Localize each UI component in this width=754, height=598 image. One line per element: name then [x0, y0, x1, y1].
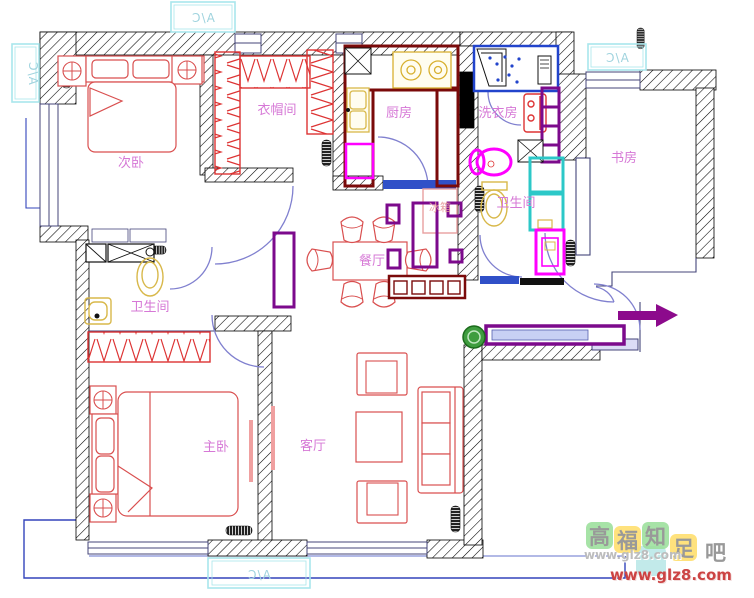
- ac-unit-top-right: A/C: [588, 44, 646, 70]
- bathroom-left-fixtures: [85, 233, 294, 324]
- bathroom-door-sill: [480, 276, 519, 284]
- coffee-table: [356, 412, 402, 462]
- ac-unit-left: A/C: [12, 44, 40, 102]
- entry-area: [463, 304, 678, 348]
- label-bathroom-left: 卫生间: [130, 300, 169, 315]
- shower-cabin: [530, 158, 563, 230]
- watermark-url-large: www.glz8.com: [610, 566, 732, 584]
- entrance-direction-arrow: [618, 304, 678, 327]
- washing-machine-magenta: [536, 230, 564, 274]
- stove: [393, 52, 451, 88]
- kitchen-appliance-magenta: [346, 144, 373, 178]
- ac-unit-bottom: A/C: [208, 558, 310, 588]
- label-master-bedroom: 主卧: [203, 440, 229, 455]
- floor-plan-page: 次卧 衣帽间 厨房 洗衣房 书房 卫生间 餐厅 卫生间 主卧 客厅 冰箱 A/C…: [0, 0, 754, 598]
- watermark: 高 福 知 足 吧 www.glz8.com www.glz8.com: [584, 516, 752, 596]
- label-bathroom-right: 卫生间: [496, 196, 535, 211]
- label-kitchen: 厨房: [386, 105, 412, 121]
- label-laundry-room: 洗衣房: [478, 105, 517, 121]
- label-fridge: 冰箱: [429, 200, 451, 214]
- ac-label-top-right: A/C: [605, 51, 629, 65]
- master-bed: [90, 386, 275, 522]
- entry-green-marker: [463, 326, 485, 348]
- ac-unit-top-left: A/C: [171, 2, 235, 32]
- sideboard-maroon: [389, 276, 465, 298]
- laundry-fixtures: [474, 46, 559, 162]
- bathroom-right-fixtures: [470, 149, 564, 274]
- label-dining-room: 餐厅: [359, 253, 385, 269]
- watermark-tile: 吧: [702, 538, 729, 565]
- kitchen-sink: [346, 88, 369, 132]
- ac-label-bottom: A/C: [247, 568, 271, 582]
- watermark-url-small: www.glz8.com: [584, 548, 682, 562]
- label-study: 书房: [611, 150, 637, 166]
- master-wardrobe: [88, 332, 210, 362]
- sofa: [418, 387, 463, 493]
- hall-door-sill: [520, 278, 564, 285]
- living-room-set: [356, 353, 463, 523]
- tv-panel: [249, 420, 253, 482]
- tv-cabinet: [271, 406, 275, 470]
- label-cloakroom: 衣帽间: [257, 102, 296, 118]
- label-living-room: 客厅: [300, 438, 326, 454]
- shoe-cabinet: [486, 326, 624, 344]
- tall-cabinet-purple: [274, 233, 294, 307]
- ac-label-left: A/C: [26, 61, 40, 85]
- watermark-tile: 高: [586, 522, 613, 549]
- watermark-tile: 知: [642, 522, 669, 549]
- label-secondary-bedroom: 次卧: [118, 155, 144, 171]
- ac-label-top-left: A/C: [191, 11, 215, 25]
- dining-set: [307, 217, 465, 307]
- ladder-shelf: [542, 88, 559, 162]
- floor-plan-canvas: 次卧 衣帽间 厨房 洗衣房 书房 卫生间 餐厅 卫生间 主卧 客厅 冰箱 A/C…: [0, 0, 754, 598]
- secondary-bedroom-furniture: [58, 56, 204, 152]
